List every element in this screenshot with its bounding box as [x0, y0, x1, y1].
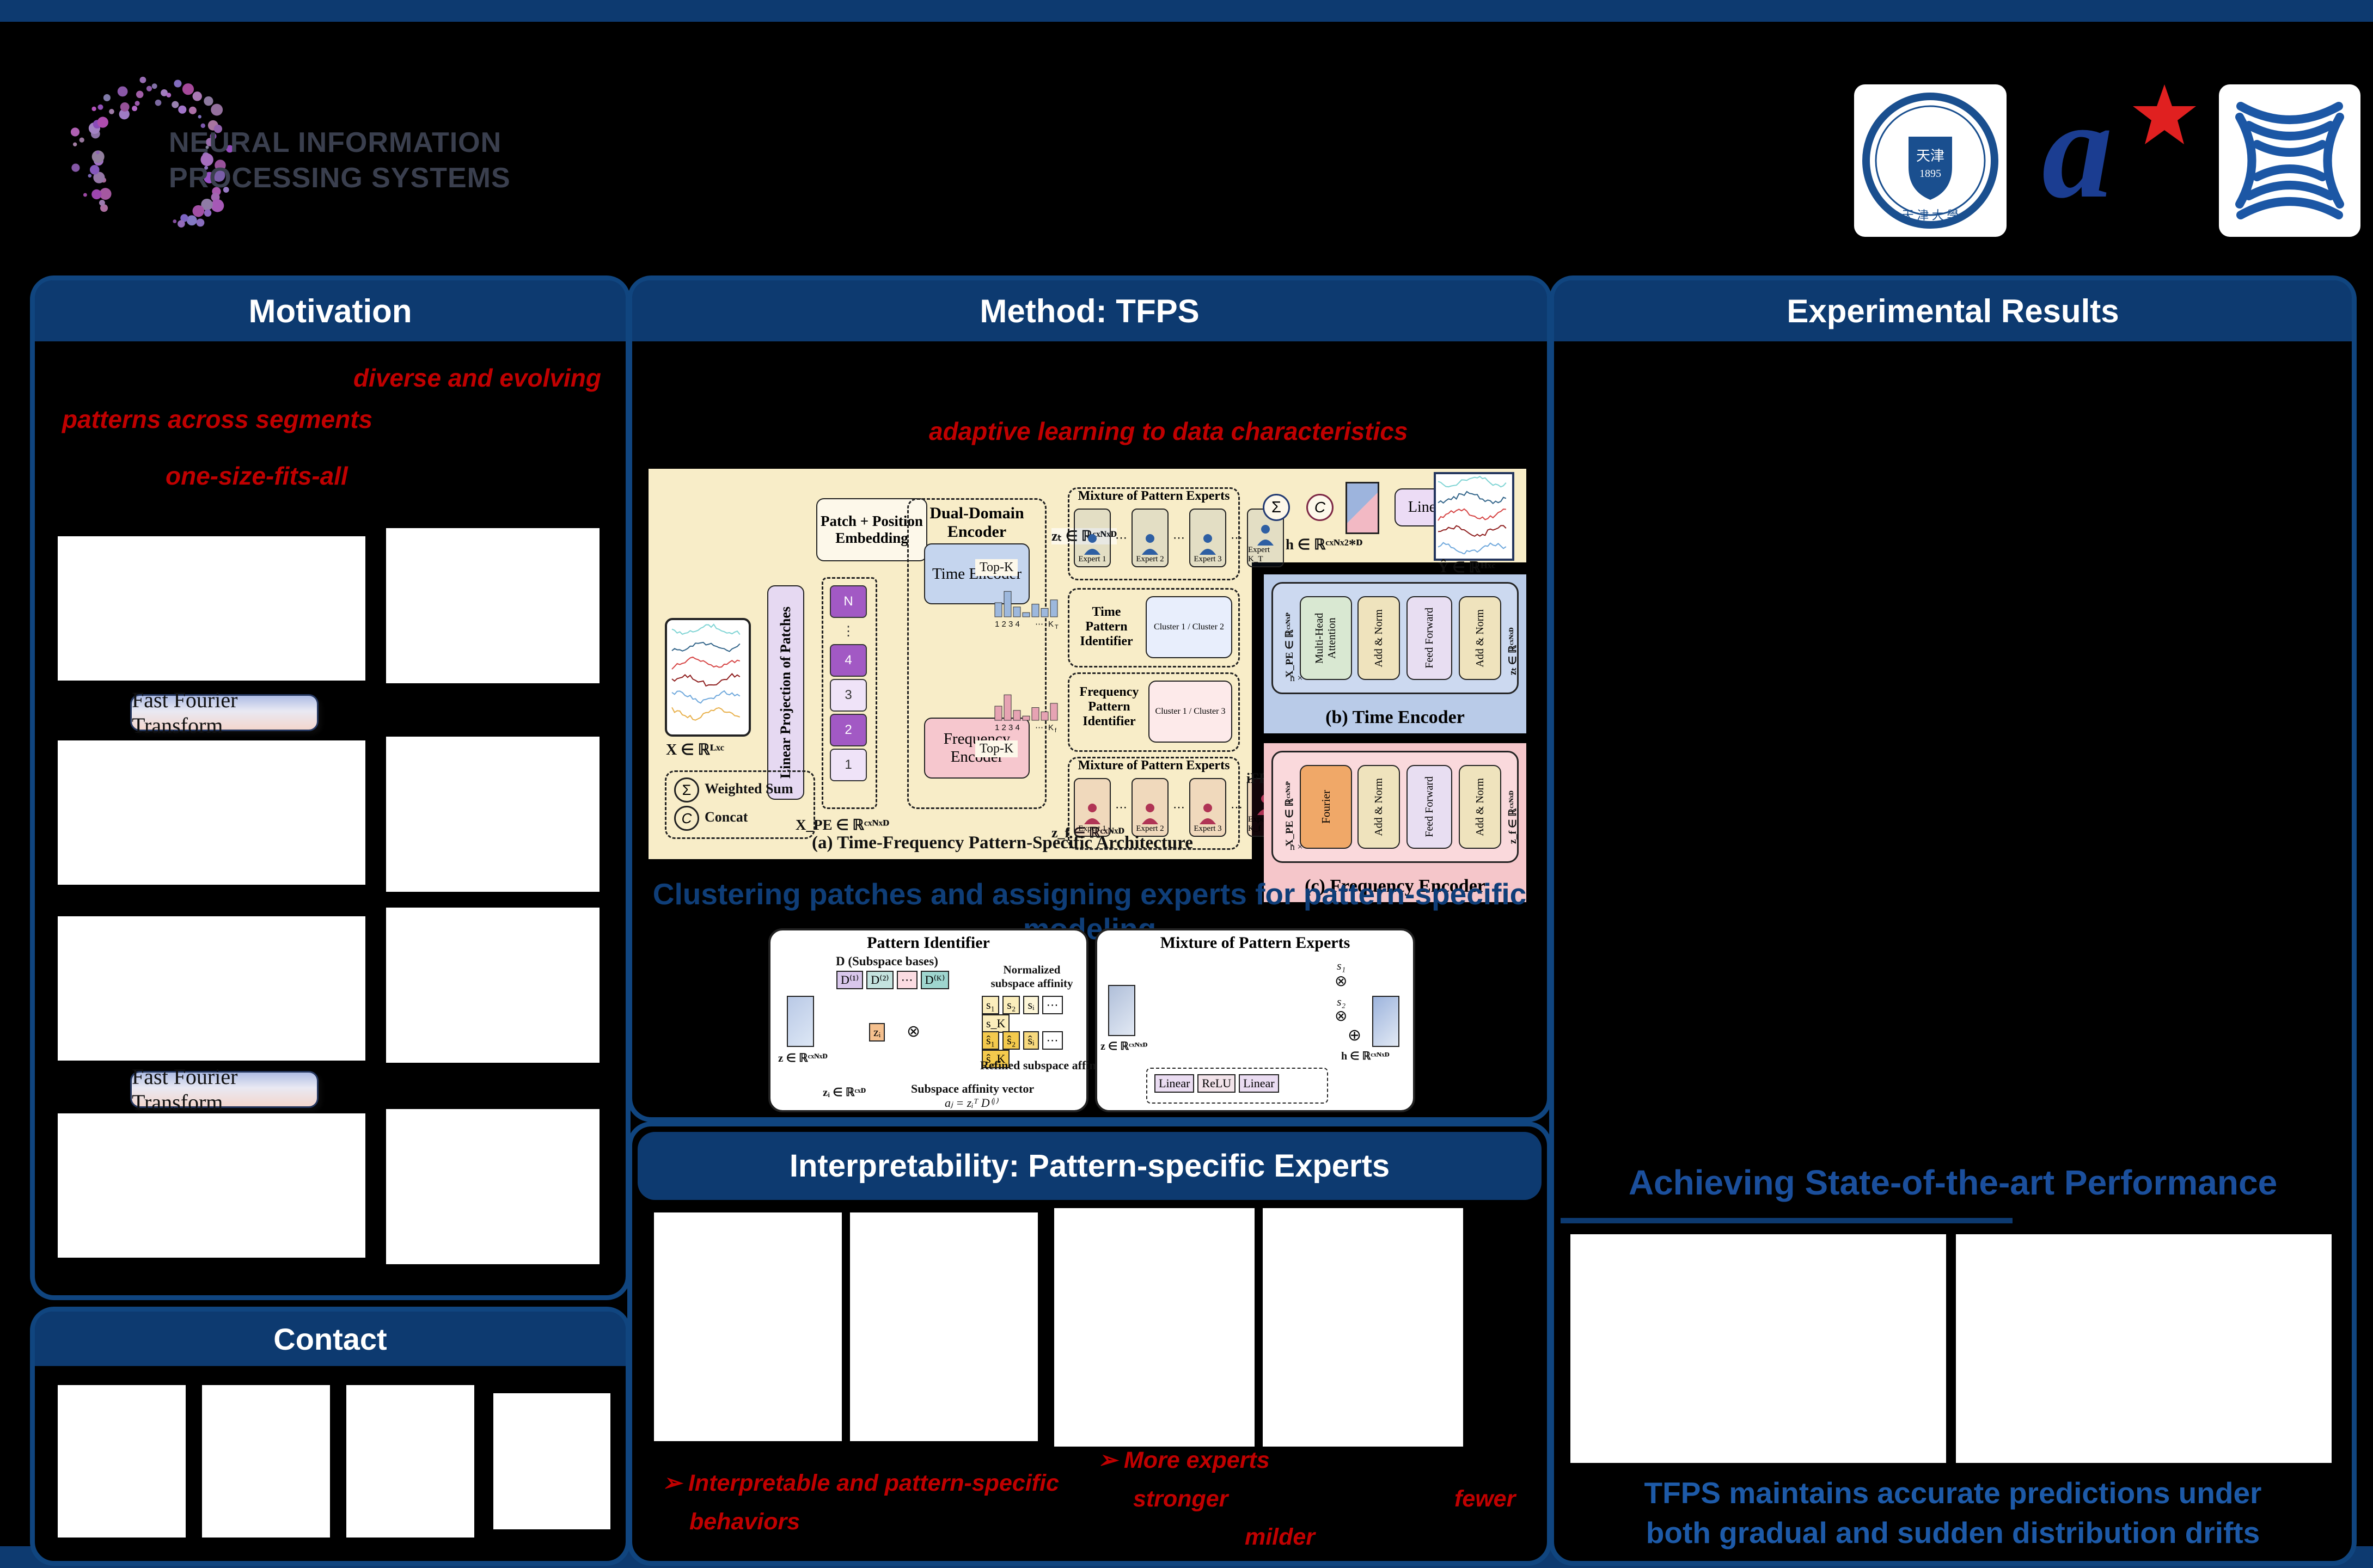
bullet-2-word3: milder	[1245, 1524, 1315, 1551]
pattern-identifier-figure: Pattern Identifier D (Subspace bases) D⁽…	[768, 928, 1088, 1112]
expert-behavior-blue-grid	[850, 1212, 1038, 1441]
fft-button-2: Fast Fourier Transform	[130, 1071, 319, 1108]
neurips-logo-line1: NEURAL INFORMATION	[169, 125, 511, 161]
time-pattern-identifier: Time Pattern Identifier Cluster 1 / Clus…	[1068, 588, 1240, 667]
motivation-panel: Motivation diverse and evolving patterns…	[30, 275, 631, 1300]
zi-chip: zᵢ	[869, 1023, 885, 1042]
chip: ReLU	[1197, 1074, 1236, 1093]
svg-text:天津: 天津	[1916, 148, 1944, 164]
method-title: Method: TFPS	[632, 280, 1547, 341]
interpretability-title: Interpretability: Pattern-specific Exper…	[638, 1132, 1542, 1200]
patch-heatmap-3	[386, 908, 600, 1063]
top-bar	[0, 0, 2373, 22]
sota-line: Achieving State-of-the-art Performance	[1554, 1162, 2352, 1203]
weighted-sum-node: Σ	[1263, 494, 1290, 521]
tianjin-university-logo: 天津 1895 天 津 大 學	[1854, 84, 2007, 237]
s-row: s₁s₂sᵢ⋯s_K	[980, 996, 1086, 1033]
neurips-logo: NEURAL INFORMATION PROCESSING SYSTEMS	[60, 76, 594, 250]
svg-text:⋯: ⋯	[1035, 723, 1043, 732]
bullet-1-line2: behaviors	[689, 1509, 800, 1535]
patch-heatmap-2	[386, 737, 600, 892]
results-caption-2: both gradual and sudden distribution dri…	[1554, 1515, 2352, 1550]
interpretability-panel: Interpretability: Pattern-specific Exper…	[627, 1122, 1552, 1566]
time-encoder-panel: X_PE ∈ ℝᶜˣᴺˣᴾ n × Multi-Head Attention A…	[1264, 574, 1526, 733]
h-cube-2	[1372, 996, 1399, 1047]
method-panel: Method: TFPS adaptive learning to data c…	[627, 275, 1552, 1122]
results-caption-1: TFPS maintains accurate predictions unde…	[1554, 1475, 2352, 1510]
mope-time-box: Mixture of Pattern Experts Expert 1⋯ Exp…	[1068, 487, 1240, 580]
patch-heatmap-1	[386, 528, 600, 683]
chip: D⁽ᴷ⁾	[921, 971, 950, 989]
qr-code-3	[346, 1385, 474, 1538]
contact-panel: Contact	[30, 1307, 631, 1566]
topk-freq: Top-K	[975, 740, 1018, 757]
input-series-card	[665, 618, 751, 737]
svg-text:1 2 3 4: 1 2 3 4	[995, 620, 1020, 629]
mope-figure: Mixture of Pattern Experts z ∈ ℝᶜˣᴺˣᴰ s₁…	[1095, 928, 1415, 1112]
contact-title: Contact	[35, 1312, 626, 1366]
chip: sᵢ	[1023, 996, 1038, 1014]
astar-logo: a	[2036, 84, 2200, 237]
prediction-plot-gradual	[1570, 1234, 1946, 1463]
chip: D⁽¹⁾	[836, 971, 863, 989]
fft-button-1: Fast Fourier Transform	[130, 694, 319, 731]
chip: Linear	[1154, 1074, 1194, 1093]
caption-b: (b) Time Encoder	[1264, 707, 1526, 728]
chip: ⋯	[897, 971, 918, 989]
svg-text:1 2 3 4: 1 2 3 4	[995, 723, 1020, 732]
chip: ŝᵢ	[1023, 1031, 1038, 1050]
results-title: Experimental Results	[1554, 280, 2352, 341]
addnorm-box-2: Add & Norm	[1459, 596, 1501, 680]
x-input-label: X ∈ ℝᴸˣᶜ	[666, 740, 724, 759]
mha-box: Multi-Head Attention	[1300, 596, 1352, 680]
chip: Linear	[1239, 1074, 1279, 1093]
chip: s_K	[982, 1014, 1010, 1033]
svg-text:K: K	[1048, 723, 1054, 732]
svg-text:1895: 1895	[1919, 168, 1941, 180]
time-cluster-plot: Cluster 1 / Cluster 2	[1146, 596, 1232, 658]
motivation-red-3: one-size-fits-all	[166, 461, 348, 491]
bullet-2-line1: More experts	[1124, 1447, 1270, 1473]
fourier-box: Fourier	[1300, 765, 1352, 849]
svg-text:天 津 大 學: 天 津 大 學	[1902, 209, 1959, 222]
expert-mlp: LinearReLULinear	[1146, 1068, 1328, 1104]
prediction-plot-sudden	[1956, 1234, 2332, 1463]
expert-behavior-red-grid	[654, 1212, 842, 1441]
token-stack: N⋮4321	[822, 577, 877, 809]
qr-code-2	[202, 1385, 330, 1538]
chip: ⋯	[1042, 996, 1063, 1014]
freq-domain-plot-1	[58, 740, 365, 885]
bullet-1-line1: Interpretable and pattern-specific	[688, 1470, 1059, 1496]
knot-pattern-logo	[2219, 84, 2360, 237]
chip: ŝ₁	[982, 1031, 999, 1050]
qr-code-homepage	[58, 1385, 186, 1538]
radar-chart-2	[1263, 1208, 1463, 1447]
addnorm-box-4: Add & Norm	[1459, 765, 1501, 849]
frequency-pattern-identifier: Frequency Pattern Identifier Cluster 1 /…	[1068, 672, 1240, 752]
results-panel: Experimental Results Achieving State-of-…	[1549, 275, 2357, 1566]
poster-page: NEURAL INFORMATION PROCESSING SYSTEMS 天津…	[0, 0, 2373, 1568]
caption-a: (a) Time-Frequency Pattern-Specific Arch…	[812, 833, 1193, 853]
freq-domain-plot-2	[58, 1113, 365, 1258]
chip: s₂	[1002, 996, 1020, 1014]
qr-code-wechat	[493, 1393, 610, 1529]
z-cube-2	[1108, 985, 1135, 1036]
motivation-red-2: patterns across segments	[62, 405, 372, 434]
svg-text:⋯: ⋯	[1035, 620, 1043, 629]
h-label: h ∈ ℝᶜˣᴺˣ²*ᴰ	[1286, 536, 1362, 553]
arch-legend: Σ Weighted Sum C Concat	[665, 770, 815, 839]
time-domain-plot-sudden	[58, 536, 365, 681]
subspace-bases-row: D⁽¹⁾D⁽²⁾⋯D⁽ᴷ⁾	[835, 971, 951, 989]
motivation-title: Motivation	[35, 280, 626, 341]
motivation-red-1: diverse and evolving	[353, 363, 601, 393]
chip: s₁	[982, 996, 999, 1014]
freq-cluster-plot: Cluster 1 / Cluster 3	[1148, 681, 1232, 743]
linear-projection-box: Linear Projection of Patches	[767, 585, 804, 800]
output-series-card	[1434, 472, 1514, 561]
h-tensor-cube	[1345, 482, 1379, 534]
svg-text:K: K	[1048, 620, 1054, 629]
addnorm-box-3: Add & Norm	[1357, 765, 1400, 849]
yhat-label: Ŷ ∈ ℝᴴˣᶜ	[1438, 559, 1495, 576]
z-cube	[787, 996, 814, 1047]
svg-text:f: f	[1055, 727, 1057, 732]
chip: ŝ₂	[1002, 1031, 1020, 1050]
patch-heatmap-4	[386, 1109, 600, 1264]
bullet-2-word2: fewer	[1454, 1486, 1515, 1512]
svg-text:T: T	[1055, 624, 1059, 629]
ff-box-2: Feed Forward	[1406, 765, 1452, 849]
chip: ⋯	[1042, 1031, 1063, 1050]
bullet-2-word1: stronger	[1133, 1486, 1228, 1512]
ff-box-1: Feed Forward	[1406, 596, 1452, 680]
topk-time: Top-K	[975, 559, 1018, 576]
addnorm-box-1: Add & Norm	[1357, 596, 1400, 680]
chip: D⁽²⁾	[866, 971, 893, 989]
time-domain-plot-gradual	[58, 916, 365, 1061]
concat-node: C	[1306, 494, 1334, 521]
divider-line	[1561, 1218, 2013, 1223]
method-red-line: adaptive learning to data characteristic…	[929, 416, 1408, 446]
dual-domain-encoder: Dual-Domain Encoder Time Encoder Frequen…	[907, 498, 1047, 809]
neurips-logo-line2: PROCESSING SYSTEMS	[169, 161, 511, 196]
radar-chart-mse	[1054, 1208, 1255, 1447]
